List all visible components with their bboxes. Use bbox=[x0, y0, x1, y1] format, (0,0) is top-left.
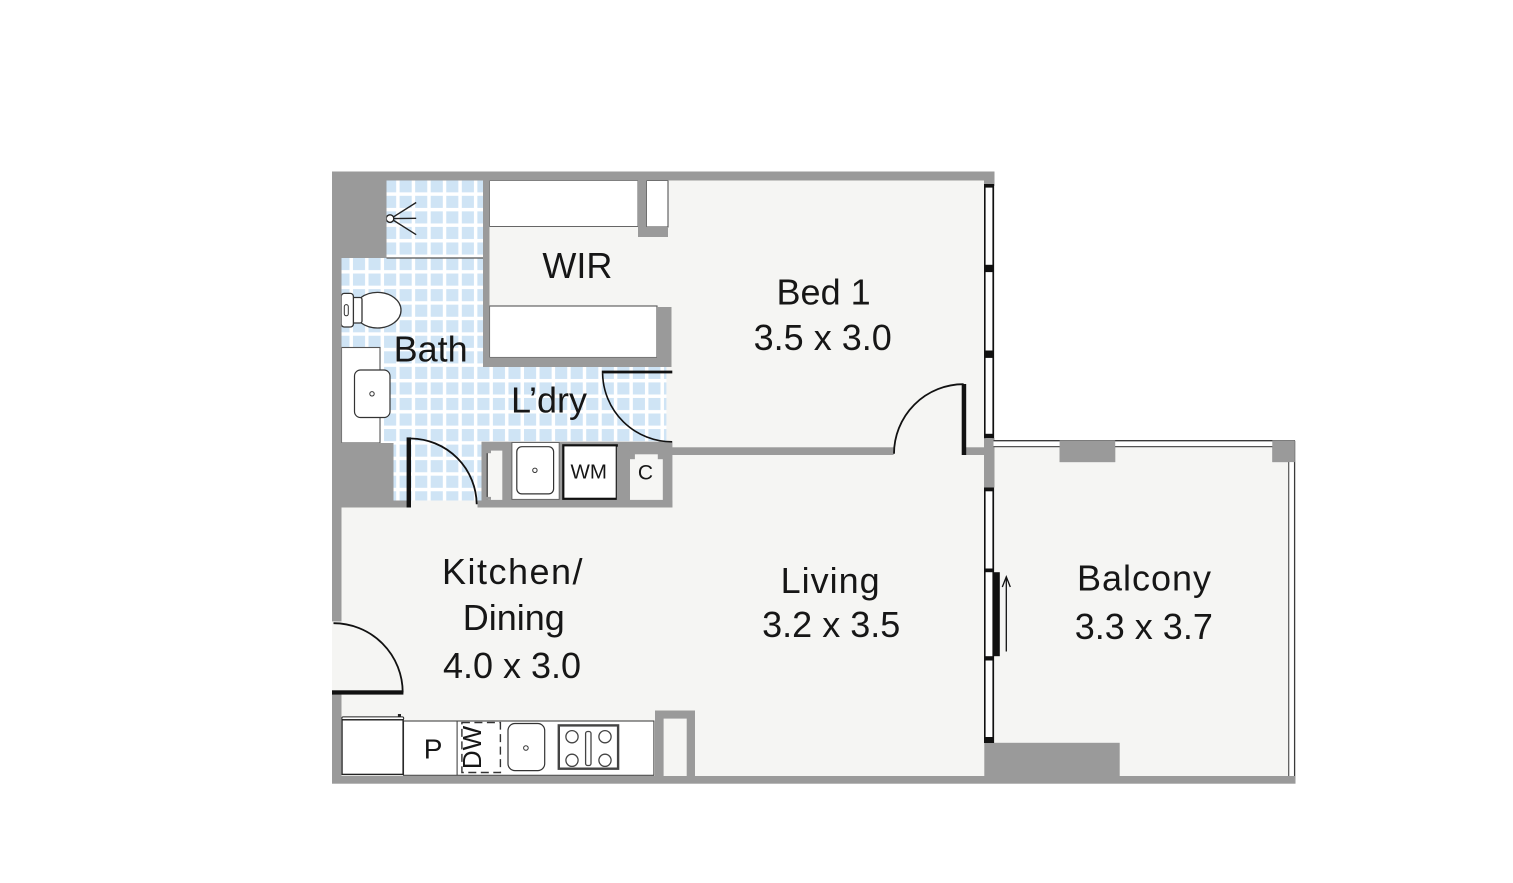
svg-text:P: P bbox=[424, 733, 443, 764]
svg-text:WM: WM bbox=[570, 461, 606, 484]
svg-text:Bath: Bath bbox=[394, 328, 468, 369]
svg-text:Living: Living bbox=[781, 560, 881, 601]
svg-text:3.5 x 3.0: 3.5 x 3.0 bbox=[754, 317, 892, 358]
svg-text:4.0 x 3.0: 4.0 x 3.0 bbox=[443, 645, 581, 686]
svg-text:WIR: WIR bbox=[542, 245, 612, 286]
svg-text:Dining: Dining bbox=[463, 597, 565, 638]
svg-text:C: C bbox=[638, 461, 653, 484]
svg-text:DW: DW bbox=[457, 725, 487, 769]
svg-text:L’dry: L’dry bbox=[511, 380, 587, 421]
svg-text:Balcony: Balcony bbox=[1077, 557, 1212, 598]
svg-text:3.2 x 3.5: 3.2 x 3.5 bbox=[762, 604, 900, 645]
svg-text:Bed 1: Bed 1 bbox=[777, 272, 871, 313]
svg-text:3.3 x 3.7: 3.3 x 3.7 bbox=[1075, 606, 1213, 647]
svg-text:Kitchen/: Kitchen/ bbox=[442, 551, 584, 592]
